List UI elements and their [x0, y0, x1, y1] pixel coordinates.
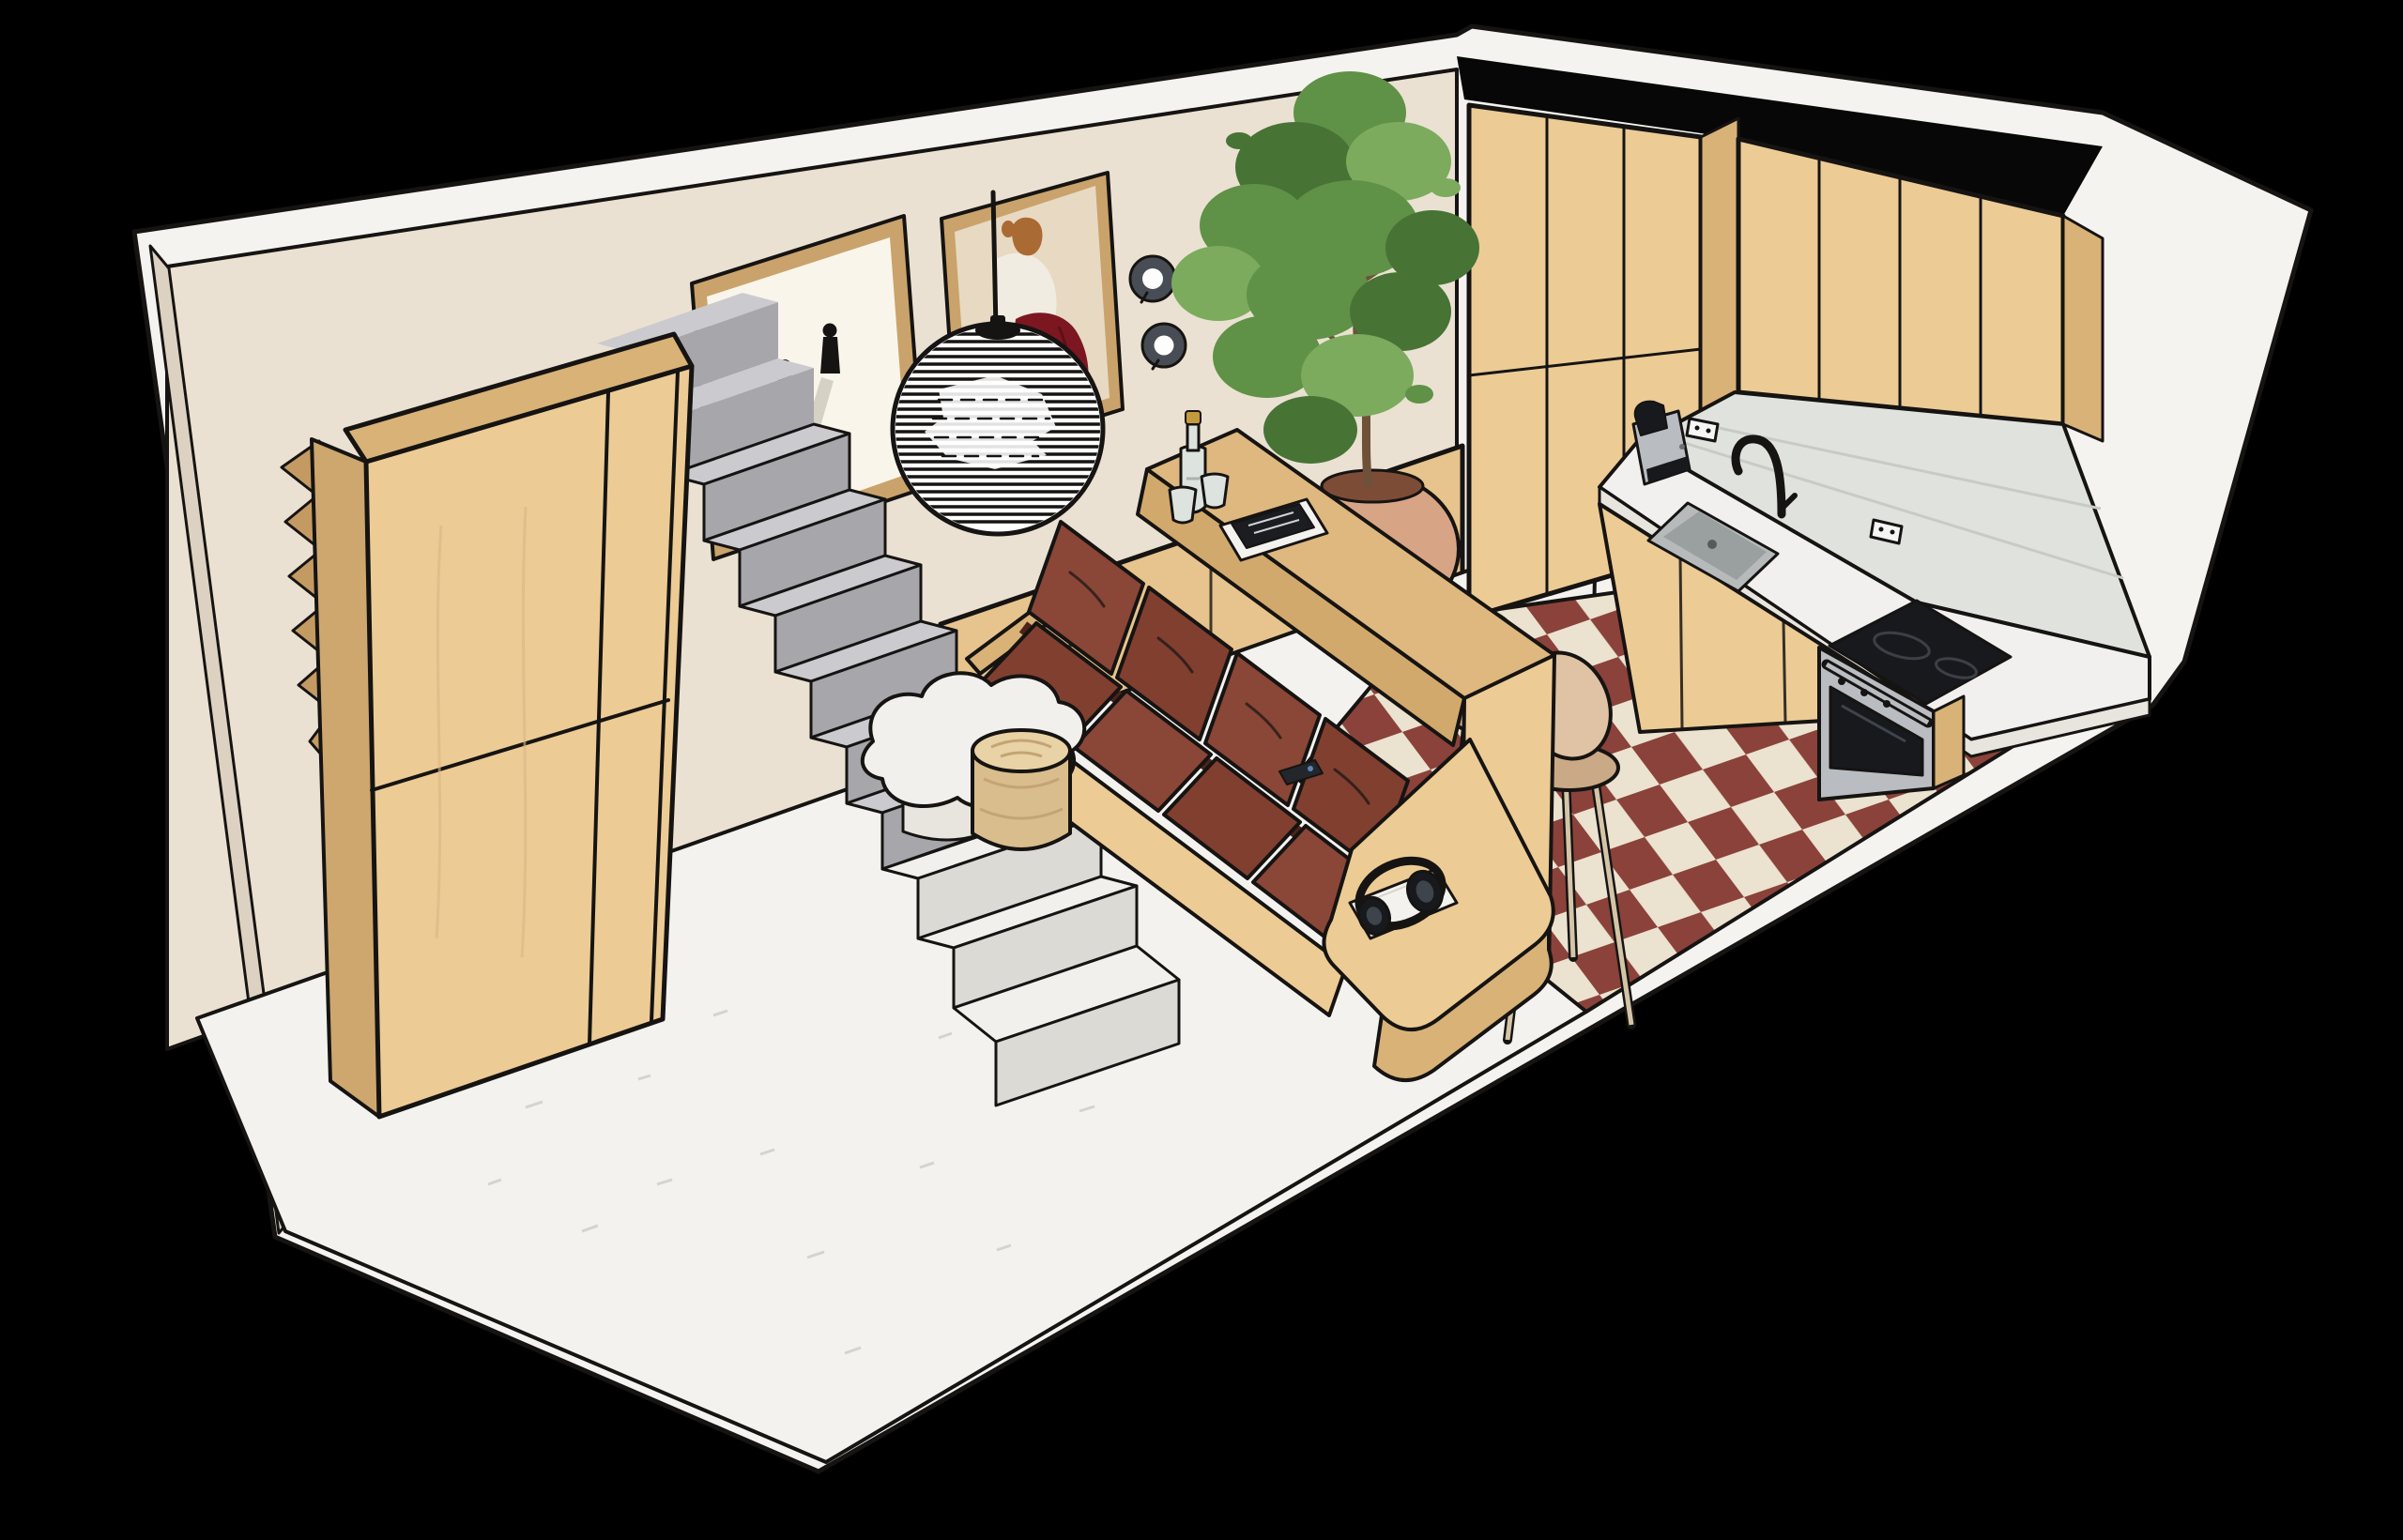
interior-rendering — [0, 0, 2403, 1540]
wardrobe — [282, 334, 692, 1117]
pouf — [972, 730, 1070, 849]
lamp-cord — [993, 192, 996, 330]
outlet — [1687, 419, 1718, 441]
